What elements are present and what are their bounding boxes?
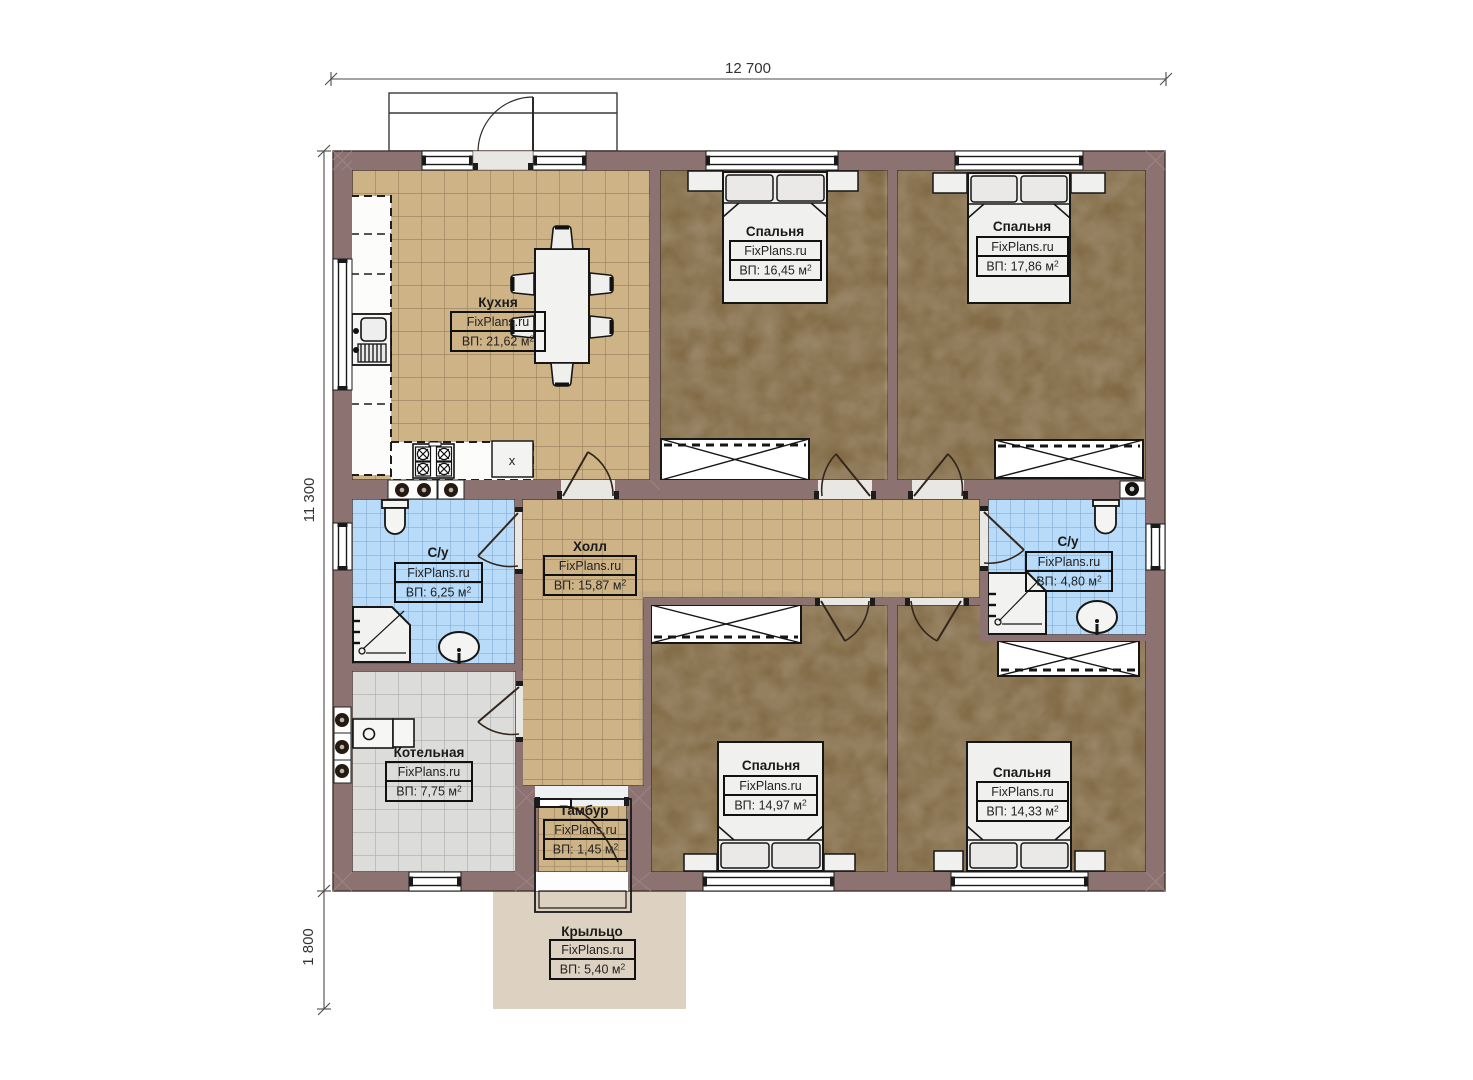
svg-text:Холл: Холл	[573, 539, 607, 554]
svg-text:12 700: 12 700	[725, 60, 771, 77]
svg-text:Спальня: Спальня	[746, 224, 804, 239]
svg-text:FixPlans.ru: FixPlans.ru	[1038, 555, 1101, 569]
svg-text:11 300: 11 300	[301, 478, 318, 523]
svg-text:FixPlans.ru: FixPlans.ru	[991, 785, 1054, 799]
svg-text:ВП: 4,80 м2: ВП: 4,80 м2	[1036, 574, 1102, 589]
svg-text:Кухня: Кухня	[478, 295, 517, 310]
svg-text:ВП: 14,33 м2: ВП: 14,33 м2	[986, 804, 1059, 819]
svg-text:FixPlans.ru: FixPlans.ru	[407, 566, 470, 580]
svg-text:Тамбур: Тамбур	[560, 803, 609, 818]
svg-text:1 800: 1 800	[300, 928, 317, 966]
svg-text:FixPlans.ru: FixPlans.ru	[561, 943, 624, 957]
svg-text:Спальня: Спальня	[993, 219, 1051, 234]
svg-text:С/у: С/у	[427, 545, 449, 560]
svg-text:Спальня: Спальня	[742, 758, 800, 773]
svg-text:Спальня: Спальня	[993, 765, 1051, 780]
svg-text:ВП: 16,45 м2: ВП: 16,45 м2	[739, 263, 812, 278]
svg-text:FixPlans.ru: FixPlans.ru	[398, 765, 461, 779]
svg-text:FixPlans.ru: FixPlans.ru	[991, 240, 1054, 254]
svg-text:ВП: 21,62 м2: ВП: 21,62 м2	[462, 334, 535, 349]
svg-text:x: x	[509, 453, 516, 468]
svg-text:FixPlans.ru: FixPlans.ru	[554, 823, 617, 837]
svg-text:ВП: 1,45 м2: ВП: 1,45 м2	[553, 842, 619, 857]
svg-text:FixPlans.ru: FixPlans.ru	[744, 244, 807, 258]
svg-text:FixPlans.ru: FixPlans.ru	[559, 559, 622, 573]
svg-text:ВП: 5,40 м2: ВП: 5,40 м2	[560, 962, 626, 977]
svg-text:Котельная: Котельная	[394, 745, 465, 760]
svg-text:ВП: 7,75 м2: ВП: 7,75 м2	[396, 784, 462, 799]
svg-text:ВП: 6,25 м2: ВП: 6,25 м2	[406, 585, 472, 600]
svg-text:FixPlans.ru: FixPlans.ru	[739, 779, 802, 793]
svg-text:ВП: 14,97 м2: ВП: 14,97 м2	[734, 798, 807, 813]
svg-text:ВП: 17,86 м2: ВП: 17,86 м2	[986, 259, 1059, 274]
svg-text:ВП: 15,87 м2: ВП: 15,87 м2	[554, 578, 627, 593]
svg-text:FixPlans.ru: FixPlans.ru	[467, 315, 530, 329]
svg-text:С/у: С/у	[1057, 534, 1079, 549]
svg-text:Крыльцо: Крыльцо	[561, 924, 622, 939]
